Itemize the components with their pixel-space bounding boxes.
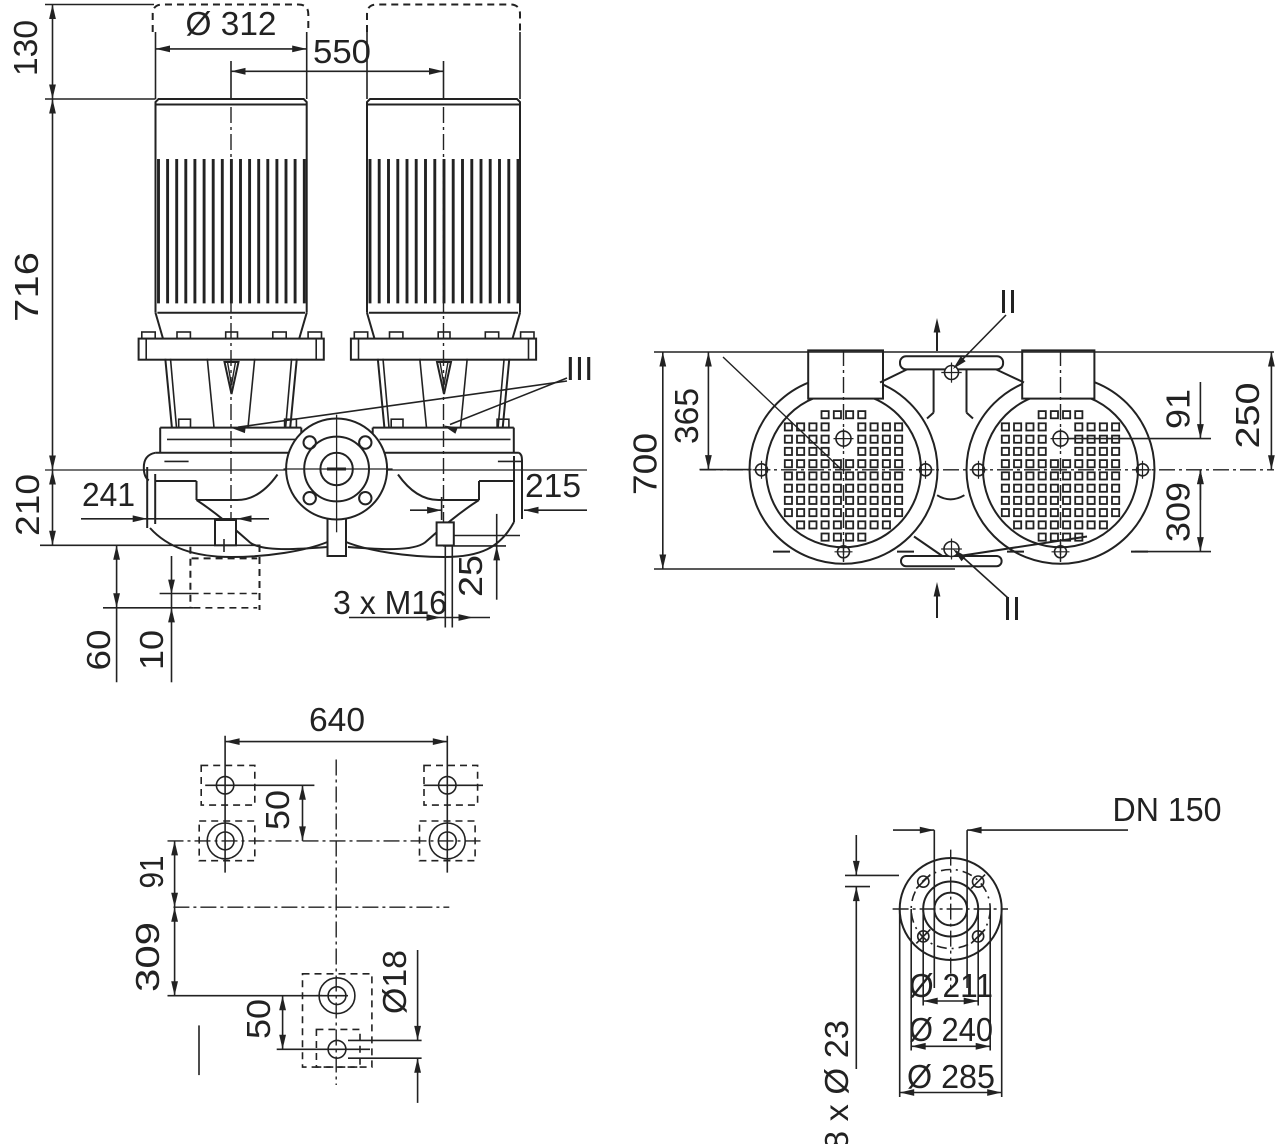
svg-text:365: 365 bbox=[668, 388, 705, 444]
svg-text:550: 550 bbox=[313, 33, 371, 70]
svg-text:8 x Ø 23: 8 x Ø 23 bbox=[818, 1020, 855, 1144]
svg-text:210: 210 bbox=[9, 474, 46, 536]
svg-text:250: 250 bbox=[1229, 383, 1266, 449]
svg-text:Ø 240: Ø 240 bbox=[909, 1011, 993, 1048]
svg-text:309: 309 bbox=[1160, 482, 1197, 542]
svg-text:640: 640 bbox=[309, 701, 365, 738]
svg-text:130: 130 bbox=[7, 20, 44, 76]
svg-text:Ø18: Ø18 bbox=[376, 950, 413, 1014]
svg-text:DN 150: DN 150 bbox=[1113, 791, 1222, 828]
svg-text:91: 91 bbox=[1160, 389, 1197, 429]
svg-text:60: 60 bbox=[80, 630, 117, 671]
svg-text:Ø 211: Ø 211 bbox=[909, 967, 993, 1004]
svg-text:50: 50 bbox=[259, 790, 296, 830]
svg-text:309: 309 bbox=[129, 922, 166, 992]
svg-text:II: II bbox=[999, 283, 1017, 320]
svg-text:91: 91 bbox=[133, 856, 170, 889]
svg-text:10: 10 bbox=[133, 630, 170, 670]
svg-text:25: 25 bbox=[452, 555, 489, 597]
svg-text:716: 716 bbox=[8, 252, 45, 322]
svg-text:III: III bbox=[566, 350, 594, 387]
svg-text:50: 50 bbox=[240, 999, 277, 1039]
svg-text:Ø 285: Ø 285 bbox=[907, 1058, 995, 1095]
svg-text:215: 215 bbox=[525, 467, 581, 504]
svg-text:Ø 312: Ø 312 bbox=[186, 5, 277, 42]
svg-text:241: 241 bbox=[82, 476, 135, 513]
svg-text:700: 700 bbox=[627, 433, 664, 495]
